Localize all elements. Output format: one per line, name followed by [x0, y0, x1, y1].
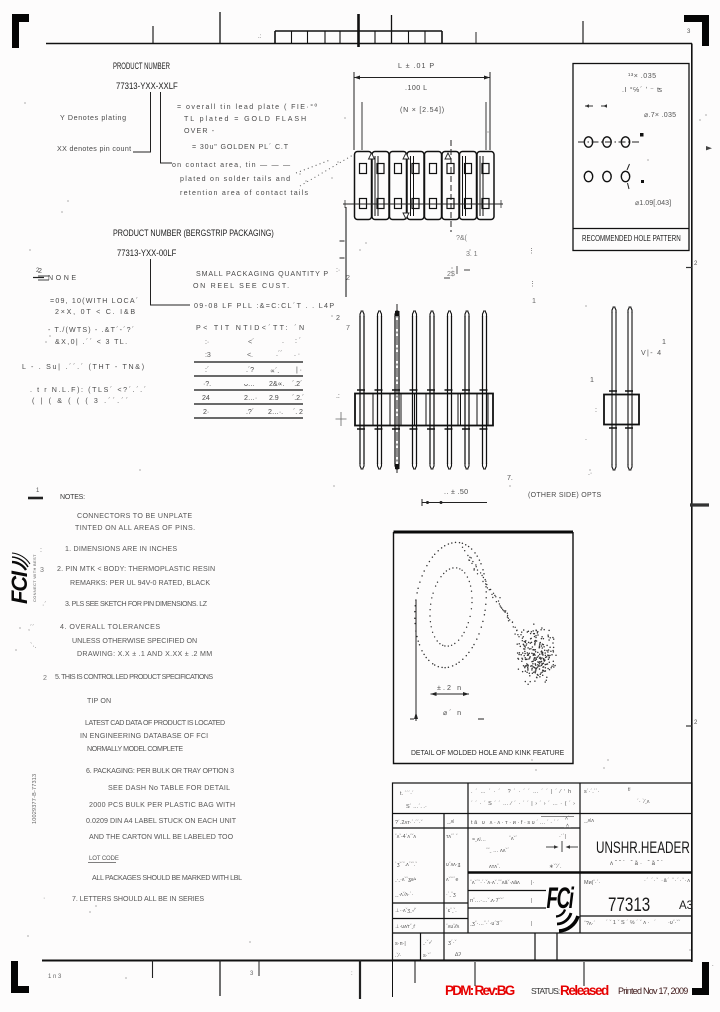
svg-text:TINTED ON ALL AREAS OF PINS.: TINTED ON ALL AREAS OF PINS.	[75, 524, 195, 532]
svg-text:ʒ´·ˇ: ʒ´·ˇ	[448, 940, 457, 946]
svg-text:ʌтʌˇ.: ʌтʌˇ.	[489, 864, 501, 870]
svg-text:s·ˇ´: s·ˇ´	[423, 953, 431, 959]
svg-text:пˇ…·…ˇ.ʌ·7ˇˇ´: пˇ…·…ˇ.ʌ·7ˇˇ´	[470, 898, 504, 904]
svg-text:OVER -: OVER -	[184, 127, 215, 135]
svg-text:ˍ·ˇ·∕: ˍ·ˇ·∕	[423, 940, 432, 946]
svg-text:7: 7	[346, 324, 350, 332]
svg-text:2×X, 0T < C. I&B: 2×X, 0T < C. I&B	[55, 308, 135, 316]
svg-text:ˈ˄ˋ: ˈ˄ˋ	[563, 816, 570, 822]
svg-text:⊥··ʌˇʒˍ·∕ˇ: ⊥··ʌˇʒˍ·∕ˇ	[395, 908, 416, 914]
svg-text:NONE: NONE	[48, 274, 76, 282]
svg-text:PRODUCT NUMBER: PRODUCT NUMBER	[113, 61, 170, 72]
svg-text:. t r N.L.F): (TLS´ <?´.´.´: . t r N.L.F): (TLS´ <?´.´.´	[30, 386, 146, 394]
svg-text:⌀.7× .035: ⌀.7× .035	[644, 111, 676, 119]
svg-text:·?.: ·?.	[203, 380, 211, 388]
svg-text:PDM: Rev:BG: PDM: Rev:BG	[445, 983, 515, 998]
svg-text:2&∝.: 2&∝.	[269, 380, 284, 388]
svg-text:.ˇ⁄·: .ˇ⁄·	[395, 953, 401, 959]
svg-text:´· ˋ⁄ˍʌ: ´· ˋ⁄ˍʌ	[637, 799, 650, 805]
svg-text:.. ± .50: .. ± .50	[444, 488, 468, 496]
svg-text:ˍ·ˍ·ʌˇˇʓʌ∕•: ˍ·ˍ·ʌˇˇʓʌ∕•	[395, 877, 416, 883]
svg-text:ᴗ…: ᴗ…	[244, 380, 255, 388]
svg-text:ˍˍʌʲʌ: ˍˍʌʲʌ	[584, 817, 594, 824]
svg-text:·´: ·´	[42, 601, 47, 609]
svg-text:FCi: FCi	[547, 882, 575, 916]
svg-text:1: 1	[532, 297, 536, 305]
svg-text:XX denotes pin count: XX denotes pin count	[57, 145, 131, 153]
svg-text:2: 2	[336, 314, 340, 322]
svg-text::: :	[595, 406, 597, 414]
svg-text:⊥·ʋʌ∕тˇˍѓ: ⊥·ʋʌ∕тˇˍѓ	[395, 923, 415, 930]
svg-text:∆ʔ: ∆ʔ	[455, 952, 461, 958]
svg-text:ˍˍʌʲ: ˍˍʌʲ	[447, 818, 454, 825]
svg-text:ˇʌˇ´: ˇʌˇ´	[509, 836, 517, 842]
svg-text::: :	[351, 971, 353, 977]
svg-text:´´·´S´´…∕´·´´|›´›´…·(´›: ´´·´S´´…∕´·´´|›´›´…·(´›	[471, 801, 575, 807]
svg-text:0.0209 DIN A4 LABEL STUCK ON E: 0.0209 DIN A4 LABEL STUCK ON EACH UNIT	[86, 817, 237, 825]
svg-text:·ʋˇ·ˇˇ: ·ʋˇ·ˇˇ	[668, 920, 680, 926]
svg-text:|: |	[531, 898, 532, 904]
svg-text:3. PLS SEE SKETCH FOR PIN DIM: 3. PLS SEE SKETCH FOR PIN DIMENSIONS. LZ	[65, 600, 208, 608]
svg-text::: :	[40, 546, 42, 554]
svg-text:NOTES:: NOTES:	[60, 494, 85, 501]
svg-text:2…·: 2…·	[244, 394, 257, 402]
svg-text::3: :3	[205, 351, 211, 359]
svg-text:LATEST CAD DATA OF PRODUCT IS: LATEST CAD DATA OF PRODUCT IS LOCATED	[85, 719, 225, 727]
svg-text:.I °℅´ ʹ ⁻ ʦ: .I °℅´ ʹ ⁻ ʦ	[622, 86, 662, 94]
svg-text:09-08 LF PLL :&=C:CL´T . .: 09-08 LF PLL :&=C:CL´T . . L4P	[194, 302, 334, 310]
svg-text:7. LETTERS SHOULD ALL BE IN SE: 7. LETTERS SHOULD ALL BE IN SERIES	[72, 895, 204, 903]
svg-text:- T./(WTS) - .&T´-´?´: - T./(WTS) - .&T´-´?´	[48, 326, 134, 334]
svg-text:A3: A3	[679, 900, 693, 912]
svg-text:ʌˇˇ´ ˇǎ· ˇǎˇ´: ʌˇˇ´ ˇǎ· ˇǎˇ´	[610, 861, 663, 867]
svg-text:1: 1	[36, 488, 40, 494]
svg-text:24: 24	[202, 394, 210, 402]
svg-text:&X,0| .´´ < 3 TL.: &X,0| .´´ < 3 TL.	[55, 338, 127, 346]
svg-text:`·.: `·.	[30, 642, 37, 650]
svg-text:t. ´´´·´: t. ´´´·´	[400, 791, 414, 797]
svg-text:1: 1	[590, 376, 594, 384]
svg-text:.´?: .´?	[246, 366, 254, 374]
svg-text:ʌˇˇˇ´е: ʌˇˇˇ´е	[446, 877, 459, 883]
svg-text:<.: <.	[247, 351, 253, 359]
svg-text:DRAWING: X.X ± .1 AND X.XX ± .: DRAWING: X.X ± .1 AND X.XX ± .2 MM	[77, 650, 212, 658]
svg-text:REMARKS: PER UL 94V-0 RATED, B: REMARKS: PER UL 94V-0 RATED, BLACK	[70, 579, 210, 587]
svg-text:2: 2	[38, 267, 42, 275]
svg-text:retention area of contact tail: retention area of contact tails	[180, 189, 309, 197]
svg-text:ʋˇʌʌ·ʓ: ʋˇʌʌ·ʓ	[446, 862, 460, 868]
svg-text:UNSHR.HEADER: UNSHR.HEADER	[596, 839, 690, 858]
svg-text:1. DIMENSIONS ARE IN INCHES: 1. DIMENSIONS ARE IN INCHES	[65, 545, 177, 553]
svg-text:CONNECT WITH BEST: CONNECT WITH BEST	[32, 554, 37, 602]
svg-text:.: .	[282, 337, 284, 345]
svg-text:Printed Nov 17, 2009: Printed Nov 17, 2009	[618, 986, 688, 996]
svg-text:on contact area, tin — — ―: on contact area, tin — — ―	[172, 161, 291, 169]
svg-text::´: :´	[205, 366, 209, 374]
svg-text:L ± .01 P: L ± .01 P	[398, 62, 434, 70]
svg-text:STATUS:: STATUS:	[531, 986, 560, 996]
svg-text:Released: Released	[560, 983, 609, 998]
svg-text:2: 2	[346, 274, 350, 282]
svg-text:·: ·	[43, 894, 45, 902]
svg-text:10029377-B-77313: 10029377-B-77313	[32, 774, 38, 824]
svg-text:77313-YXX-00LF: 77313-YXX-00LF	[117, 247, 176, 258]
svg-text:2: 2	[694, 720, 698, 726]
svg-text:?&(: ?&(	[456, 234, 467, 242]
svg-text:∝´.: ∝´.	[270, 367, 279, 375]
svg-text:2.9: 2.9	[269, 394, 279, 402]
svg-text:2$: 2$	[447, 270, 455, 278]
svg-text:⋮: ⋮	[529, 280, 536, 288]
svg-text:.100 L: .100 L	[405, 84, 427, 92]
svg-text:2000 PCS BULK PER PLASTIC BAG: 2000 PCS BULK PER PLASTIC BAG WITH	[89, 801, 235, 809]
svg-text:·´ˍˇʒ: ·´ˍˇʒ	[446, 892, 456, 898]
svg-text:s´·´.´´·: s´·´.´´·	[584, 789, 599, 795]
svg-text::·: :·	[205, 338, 209, 346]
svg-text:.: .	[585, 434, 587, 442]
svg-text:= overall tin lead plate ( FI: = overall tin lead plate ( FIE·°º	[177, 103, 318, 111]
svg-text:⋮: ⋮	[528, 247, 535, 255]
svg-text:3. 1: 3. 1	[466, 250, 478, 258]
svg-text:Y Denotes plating: Y Denotes plating	[60, 114, 126, 122]
svg-text:L - . Su| .´´.´ (THT - TN: L - . Su| .´´.´ (THT - TN&)	[22, 363, 144, 371]
svg-text:FCI: FCI	[7, 570, 32, 604]
svg-text::·: :·	[336, 266, 340, 274]
svg-text:2: 2	[694, 261, 698, 267]
svg-text:,´´: ,´´	[28, 624, 34, 632]
svg-text:ʾʒˇ´ˇ.ʌ´ˇˇ.ˇ: ʾʒˇ´ˇ.ʌ´ˇˇ.ˇ	[395, 861, 417, 868]
svg-text:= 30u" GOLDEN PL´ C.T: = 30u" GOLDEN PL´ C.T	[192, 143, 289, 151]
svg-text:´. 2: ´. 2	[293, 408, 303, 416]
svg-text:´.2.´: ´.2.´	[292, 394, 304, 402]
svg-text:SEE DASH No TABLE FOR DETAIL: SEE DASH No TABLE FOR DETAIL	[108, 784, 230, 792]
svg-text:SMALL PACKAGING QUANTITY P: SMALL PACKAGING QUANTITY P	[196, 270, 328, 278]
svg-text:2: 2	[43, 674, 47, 682]
svg-text:ˍ˄ˍ: ˍ˄ˍ	[564, 823, 571, 829]
svg-text:(N × [2.54]): (N × [2.54])	[400, 106, 444, 114]
svg-text:´ˇ1ˇS´℅´ˇʌ· ´: ´ˇ1ˇS´℅´ˇʌ· ´	[606, 920, 656, 926]
svg-text:.:: .:	[258, 34, 262, 40]
svg-text:.?´: .?´	[246, 408, 254, 416]
svg-text:.´…´·´ ?´·´´…´´|´⁄ʹh: .´…´·´ ?´·´´…´´|´⁄ʹh	[471, 788, 571, 795]
svg-text:NORMALLY MODEL COMPLETE: NORMALLY MODEL COMPLETE	[87, 745, 183, 753]
svg-text:RECOMMENDED HOLE PATTERN: RECOMMENDED HOLE PATTERN	[582, 235, 681, 243]
svg-text:≈ˍʌʲ…: ≈ˍʌʲ…	[472, 836, 486, 843]
svg-text:4. OVERALL TOLERANCES: 4. OVERALL TOLERANCES	[60, 623, 160, 631]
svg-text:CONNECTORS TO BE UNPLATE: CONNECTORS TO BE UNPLATE	[77, 512, 192, 520]
svg-text:?´.2ʌт·´·´´·ˇ: ?´.2ʌт·´·´´·ˇ	[395, 820, 423, 826]
svg-text:s·п·|: s·п·|	[395, 941, 406, 947]
svg-text:1 n 3: 1 n 3	[48, 974, 62, 980]
svg-text:TIP ON: TIP ON	[87, 697, 111, 705]
svg-text:⌀´ n: ⌀´ n	[443, 709, 461, 717]
svg-text:|: |	[531, 921, 532, 927]
svg-text:ˇ?ʌ·´: ˇ?ʌ·´	[584, 921, 595, 927]
svg-text:2…·.: 2…·.	[268, 408, 283, 416]
svg-text:( | ( & ( ( ( 3 .´´.´´: ( | ( & ( ( ( 3 .´´.´´	[32, 397, 128, 405]
svg-text:=09, 10(WITH LOCA´: =09, 10(WITH LOCA´	[50, 297, 138, 305]
svg-text:ˍʒˇ·…ˇ·´·ʋ´3´´: ˍʒˇ·…ˇ·´·ʋ´3´´	[470, 921, 503, 927]
svg-text:TL plated = GOLD FLASH: TL plated = GOLD FLASH	[184, 115, 306, 123]
svg-text:| ·: | ·	[296, 366, 302, 374]
svg-text:Mи|ˇ·´·: Mи|ˇ·´·	[584, 880, 601, 886]
svg-text:IN ENGINEERING DATABASE OF FCI: IN ENGINEERING DATABASE OF FCI	[80, 732, 208, 740]
svg-text:ˇʌˇ-4ʿʌˇˇʌ: ˇʌˇ-4ʿʌˇˇʌ	[395, 833, 416, 840]
svg-text:±.2 n: ±.2 n	[437, 684, 461, 692]
svg-text:¹³× .035: ¹³× .035	[628, 72, 656, 80]
svg-text:тʌˇ´ ˇ: тʌˇ´ ˇ	[446, 834, 458, 840]
svg-text:.: .	[712, 962, 714, 968]
svg-text:77313: 77313	[608, 893, 650, 915]
svg-text:S´ …´. .·: S´ …´. .·	[406, 804, 427, 810]
svg-text:UNLESS OTHERWISE SPECIFIED ON: UNLESS OTHERWISE SPECIFIED ON	[72, 637, 197, 645]
svg-text:⌀1.09[.043]: ⌀1.09[.043]	[635, 199, 671, 207]
svg-text:: ´: : ´	[295, 337, 301, 345]
svg-text:V|- 4: V|- 4	[641, 349, 661, 357]
svg-text:|·: |·	[531, 880, 534, 886]
svg-text:∗ˇˇ∕´.: ∗ˇˇ∕´.	[549, 864, 562, 870]
svg-text:6. PACKAGING: PER BULK OR TRAY: 6. PACKAGING: PER BULK OR TRAY OPTION 3	[86, 767, 234, 775]
svg-text:ˇʌˇ´ˇ·´·ˇʌ·ʌˇ.ˇˇʌǎˇ·ʌǎʌ: ˇʌˇ´ˇ·´·ˇʌ·ʌˇ.ˇˇʌǎˇ·ʌǎʌ	[470, 880, 520, 886]
svg-text:plated on solder tails and: plated on solder tails and	[180, 175, 290, 183]
svg-text:1: 1	[662, 338, 666, 346]
svg-text:ˇˇˍ … ʌʌˇ´: ˇˇˍ … ʌʌˇ´	[486, 848, 509, 854]
svg-text:´.2´: ´.2´	[292, 380, 302, 388]
svg-text:3: 3	[687, 29, 691, 35]
svg-text:·ˈ´|: ·ˈ´|	[559, 834, 566, 840]
svg-text:ˍˍ·ʌˇ⁄ʌ·´·: ˍˍ·ʌˇ⁄ʌ·´·	[395, 892, 413, 898]
svg-text:AND THE CARTON WILL BE LABELED: AND THE CARTON WILL BE LABELED TOO	[89, 833, 234, 841]
svg-text:(OTHER SIDE) OPTS: (OTHER SIDE) OPTS	[528, 492, 602, 499]
svg-text:2·: 2·	[203, 408, 209, 416]
svg-text:3: 3	[250, 971, 254, 977]
svg-text:ˇʌʋˇ∕⁄ʌ: ˇʌʋˇ∕⁄ʌ	[446, 924, 460, 930]
svg-text:P< TIT NTID<´TT: ´N: P< TIT NTID<´TT: ´N	[196, 324, 304, 332]
svg-text:tǎ ʋ ʌ·ʌ·т·и·f·sʋ´…´·´´: tǎ ʋ ʌ·ʌ·т·и·f·sʋ´…´·´´	[471, 820, 559, 826]
svg-text:ʾɛˇˍˇ.: ʾɛˇˍˇ.	[446, 907, 457, 914]
svg-text:tʲ: tʲ	[628, 786, 631, 793]
svg-text:ALL PACKAGES SHOULD BE MARKED: ALL PACKAGES SHOULD BE MARKED WITH LBL	[92, 874, 242, 882]
svg-text:.´´: .´´	[276, 350, 282, 358]
svg-text:5. THIS IS CONTROL LED PRODUCT: 5. THIS IS CONTROL LED PRODUCT SPECIFICA…	[55, 673, 213, 681]
svg-text:LOT CODE: LOT CODE	[89, 856, 119, 862]
svg-text:·´ ´·ˇ ·ǎ´ ˇ·´·ˇ·ʌ: ·´ ´·ˇ ·ǎ´ ˇ·´·ˇ·ʌ	[644, 878, 690, 884]
svg-text:<´: <´	[248, 338, 254, 346]
svg-text:.:: .:	[336, 392, 340, 400]
svg-text:77313-YXX-XXLF: 77313-YXX-XXLF	[116, 80, 178, 91]
svg-text:DETAIL OF MOLDED HOLE AND KINK: DETAIL OF MOLDED HOLE AND KINK FEATURE	[411, 748, 564, 758]
svg-text:2. PIN MTK < BODY: THERMOPLAST: 2. PIN MTK < BODY: THERMOPLASTIC RESIN	[57, 565, 215, 573]
svg-text:ON REEL SEE CUST.: ON REEL SEE CUST.	[193, 282, 289, 290]
svg-text:7.: 7.	[507, 474, 513, 482]
svg-text:3: 3	[40, 566, 44, 574]
svg-text:. ·: . ·	[294, 350, 300, 358]
svg-text:PRODUCT NUMBER (BERGSTRIP PACK: PRODUCT NUMBER (BERGSTRIP PACKAGING)	[113, 228, 274, 238]
